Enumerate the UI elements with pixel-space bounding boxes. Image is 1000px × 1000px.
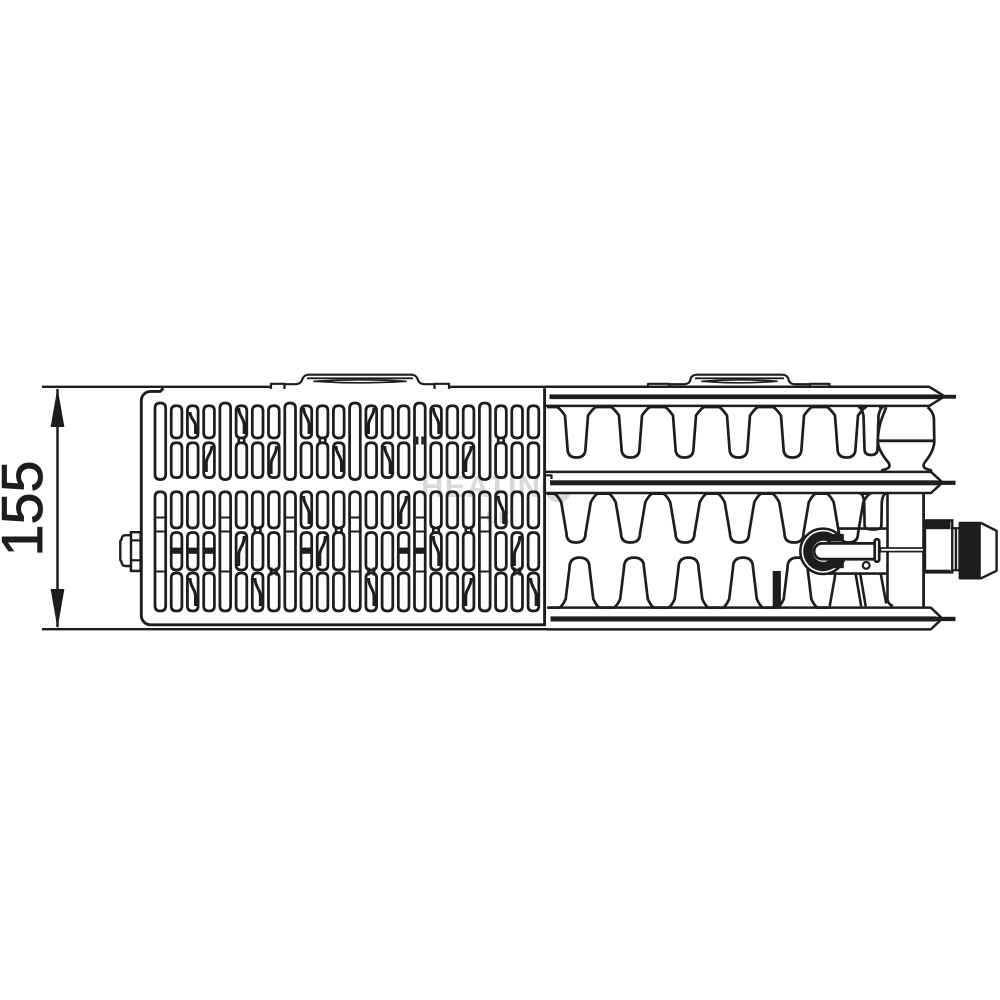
svg-text:155: 155 bbox=[0, 461, 55, 557]
